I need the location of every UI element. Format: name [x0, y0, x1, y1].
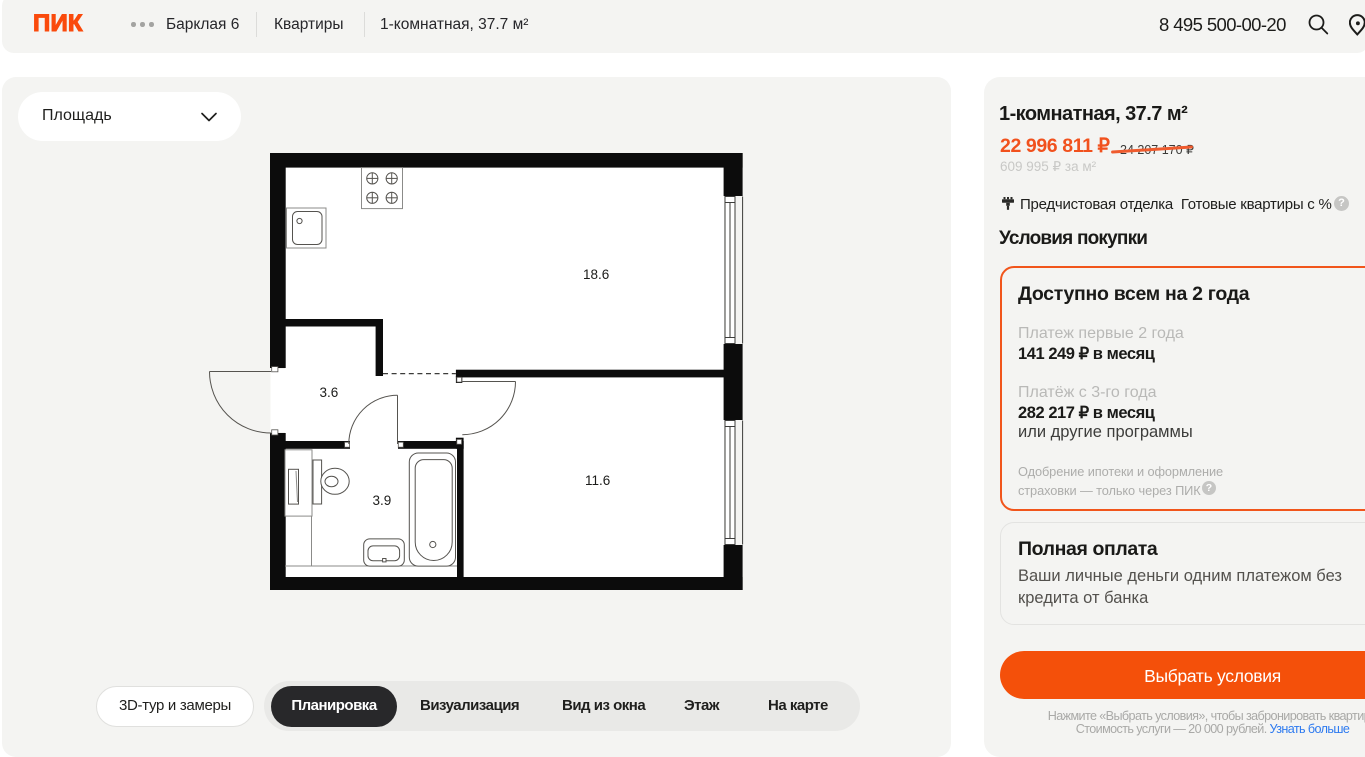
svg-text:18.6: 18.6 [583, 267, 609, 282]
svg-text:3.9: 3.9 [373, 493, 392, 508]
svg-text:11.6: 11.6 [585, 473, 610, 488]
svg-text:3.6: 3.6 [320, 385, 339, 400]
